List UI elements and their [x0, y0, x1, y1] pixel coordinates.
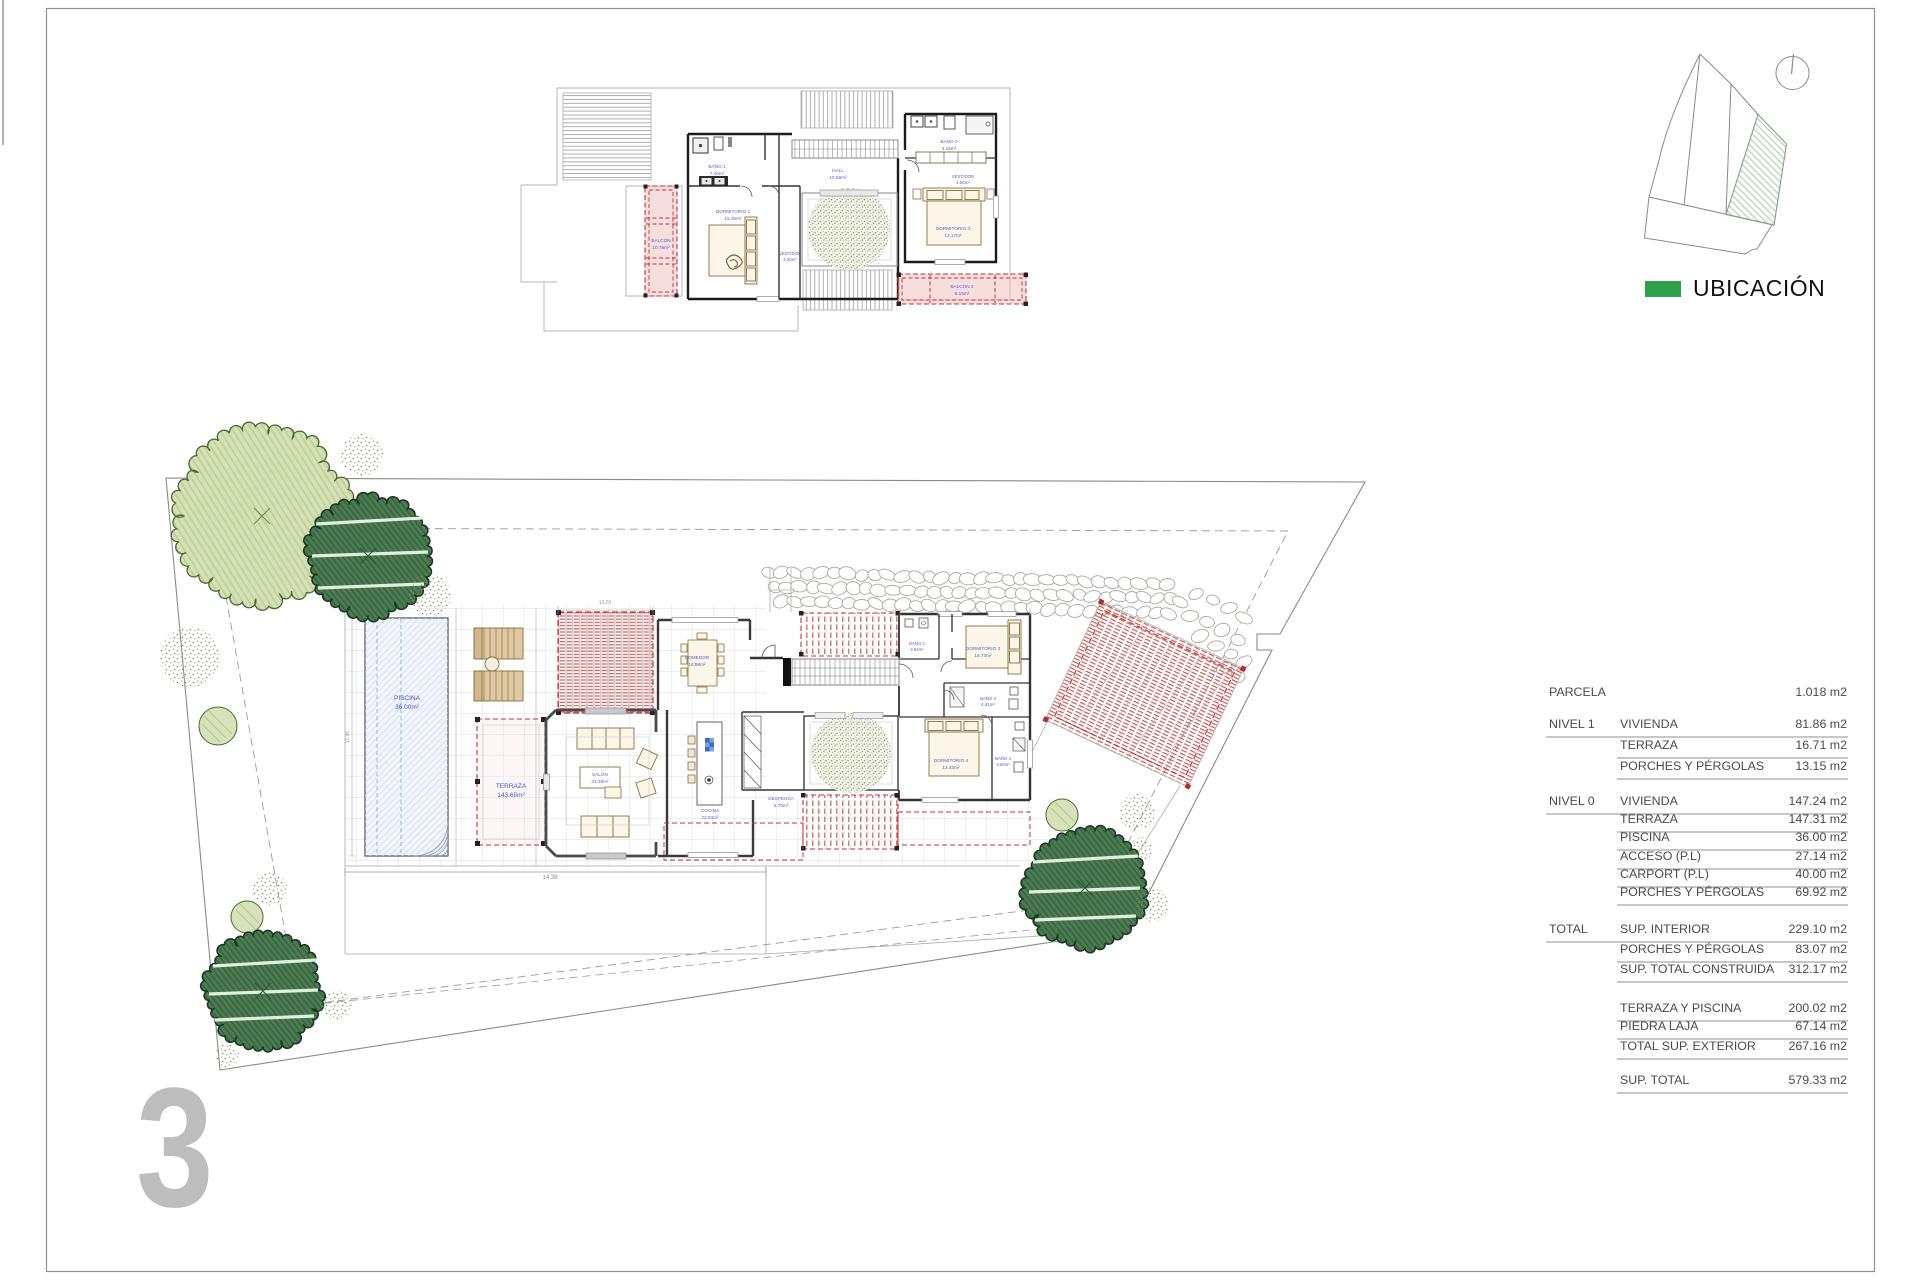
svg-text:16.71 m2: 16.71 m2 — [1795, 738, 1847, 752]
svg-text:14.38: 14.38 — [542, 875, 558, 881]
svg-text:VESTIDOR: VESTIDOR — [779, 251, 801, 256]
svg-text:CARPORT (P.L): CARPORT (P.L) — [1620, 867, 1709, 881]
svg-text:BALCÓN: BALCÓN — [651, 237, 670, 243]
svg-text:5.70m²: 5.70m² — [774, 803, 789, 808]
svg-text:SUP. INTERIOR: SUP. INTERIOR — [1620, 922, 1710, 936]
svg-text:UBICACIÓN: UBICACIÓN — [1693, 275, 1825, 301]
svg-text:COCINA: COCINA — [701, 808, 720, 813]
svg-text:143.65m²: 143.65m² — [497, 792, 525, 799]
svg-text:TERRAZA: TERRAZA — [496, 783, 527, 790]
svg-text:VIVIENDA: VIVIENDA — [1620, 794, 1679, 808]
svg-text:DORMITORIO 4: DORMITORIO 4 — [934, 758, 969, 763]
svg-text:PORCHES Y PÉRGOLAS: PORCHES Y PÉRGOLAS — [1620, 884, 1764, 899]
svg-text:NIVEL 1: NIVEL 1 — [1549, 717, 1595, 731]
svg-text:312.17 m2: 312.17 m2 — [1788, 962, 1847, 976]
svg-text:TERRAZA Y PISCINA: TERRAZA Y PISCINA — [1620, 1001, 1742, 1015]
svg-text:16.98m²: 16.98m² — [688, 662, 706, 667]
svg-text:4.15m²: 4.15m² — [942, 146, 957, 151]
svg-text:VIVIENDA: VIVIENDA — [1620, 717, 1679, 731]
svg-text:147.24 m2: 147.24 m2 — [1788, 794, 1847, 808]
svg-text:BAÑO 1: BAÑO 1 — [708, 163, 726, 169]
svg-text:SUP. TOTAL CONSTRUIDA: SUP. TOTAL CONSTRUIDA — [1620, 962, 1775, 976]
svg-text:BAÑO 2: BAÑO 2 — [940, 138, 958, 144]
svg-text:33.36m²: 33.36m² — [591, 779, 609, 784]
svg-text:DORMITORIO 3: DORMITORIO 3 — [936, 226, 971, 231]
svg-text:BAÑO 2: BAÑO 2 — [909, 641, 925, 646]
svg-text:2.94m²: 2.94m² — [910, 647, 924, 652]
svg-text:BALCÓN 2: BALCÓN 2 — [950, 283, 974, 289]
svg-text:VESTIDOR: VESTIDOR — [952, 174, 974, 179]
svg-text:200.02 m2: 200.02 m2 — [1788, 1001, 1847, 1015]
svg-text:69.92 m2: 69.92 m2 — [1795, 885, 1847, 899]
svg-text:10.59m²: 10.59m² — [829, 175, 847, 180]
svg-text:13.43m²: 13.43m² — [942, 765, 960, 770]
svg-text:40.00 m2: 40.00 m2 — [1795, 867, 1847, 881]
svg-text:36.00 m2: 36.00 m2 — [1795, 830, 1847, 844]
svg-text:3: 3 — [136, 1052, 214, 1242]
svg-text:SALÓN: SALÓN — [592, 771, 608, 777]
svg-text:DESPENSA: DESPENSA — [768, 796, 794, 801]
svg-text:TERRAZA: TERRAZA — [1620, 738, 1679, 752]
svg-text:4.51m²: 4.51m² — [981, 702, 995, 707]
svg-text:267.16 m2: 267.16 m2 — [1788, 1039, 1847, 1053]
svg-text:15.36m²: 15.36m² — [724, 216, 742, 221]
svg-text:TERRAZA: TERRAZA — [1620, 812, 1679, 826]
svg-text:10.75m²: 10.75m² — [652, 245, 670, 250]
svg-text:4.60m²: 4.60m² — [996, 762, 1010, 767]
svg-text:DORMITORIO 1: DORMITORIO 1 — [716, 209, 751, 214]
svg-text:9.15m²: 9.15m² — [955, 291, 970, 296]
svg-text:81.86 m2: 81.86 m2 — [1795, 717, 1847, 731]
svg-text:1.018 m2: 1.018 m2 — [1795, 685, 1847, 699]
svg-text:13.15 m2: 13.15 m2 — [1795, 759, 1847, 773]
svg-text:27.14 m2: 27.14 m2 — [1795, 849, 1847, 863]
svg-text:TOTAL SUP. EXTERIOR: TOTAL SUP. EXTERIOR — [1620, 1039, 1756, 1053]
svg-text:BAÑO 3: BAÑO 3 — [980, 696, 997, 701]
svg-text:ACCESO (P.L): ACCESO (P.L) — [1620, 849, 1701, 863]
svg-text:67.14 m2: 67.14 m2 — [1795, 1019, 1847, 1033]
svg-text:11.96: 11.96 — [345, 731, 351, 743]
svg-text:NIVEL 0: NIVEL 0 — [1549, 794, 1595, 808]
svg-text:83.07 m2: 83.07 m2 — [1795, 942, 1847, 956]
svg-text:TOTAL: TOTAL — [1549, 922, 1588, 936]
svg-text:4.56m²: 4.56m² — [956, 180, 970, 185]
svg-text:PISCINA: PISCINA — [394, 695, 421, 702]
svg-text:3.20m²: 3.20m² — [783, 257, 797, 262]
svg-text:147.31 m2: 147.31 m2 — [1788, 812, 1847, 826]
svg-text:7.40m²: 7.40m² — [710, 171, 725, 176]
svg-text:579.33 m2: 579.33 m2 — [1788, 1073, 1847, 1087]
svg-text:SUP. TOTAL: SUP. TOTAL — [1620, 1073, 1689, 1087]
svg-text:13.00: 13.00 — [599, 600, 612, 606]
svg-text:PARCELA: PARCELA — [1549, 685, 1607, 699]
svg-text:PISCINA: PISCINA — [1620, 830, 1670, 844]
svg-text:PIEDRA LAJA: PIEDRA LAJA — [1620, 1019, 1699, 1033]
svg-text:13.17m²: 13.17m² — [944, 233, 962, 238]
svg-text:BAÑO 4: BAÑO 4 — [995, 756, 1011, 761]
svg-text:PORCHES Y PÉRGOLAS: PORCHES Y PÉRGOLAS — [1620, 941, 1764, 956]
svg-text:18.73m²: 18.73m² — [974, 653, 992, 658]
svg-text:229.10 m2: 229.10 m2 — [1788, 922, 1847, 936]
svg-text:22.04m²: 22.04m² — [701, 815, 719, 820]
svg-text:HALL: HALL — [832, 168, 844, 173]
svg-text:36.00m²: 36.00m² — [395, 704, 420, 711]
svg-text:DORMITORIO 3: DORMITORIO 3 — [966, 646, 1001, 651]
svg-text:PORCHES Y PÉRGOLAS: PORCHES Y PÉRGOLAS — [1620, 758, 1764, 773]
svg-text:COMEDOR: COMEDOR — [685, 655, 710, 660]
